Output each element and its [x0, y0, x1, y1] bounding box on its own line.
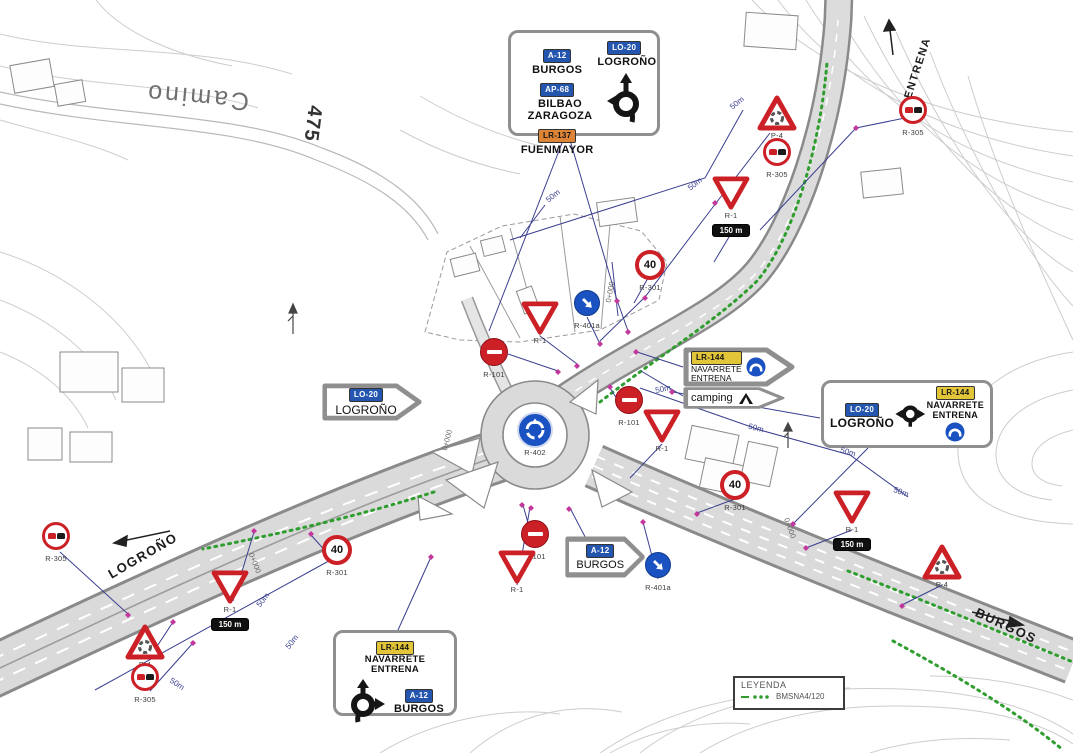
tunnel-pictogram-icon	[945, 422, 965, 442]
arrow-sign-navarrete-entrena: LR-144 NAVARRETE ENTRENA	[683, 347, 795, 387]
route-badge-lo20: LO-20	[845, 403, 879, 417]
legend-item-label: BMSNA4/120	[776, 692, 824, 701]
direction-board-right: LO-20 LOGROÑO LR-144 NAVARRETE ENTRENA	[821, 380, 993, 448]
tunnel-pictogram-icon	[746, 357, 766, 377]
route-badge-lr144: LR-144	[936, 386, 974, 400]
signage-plan-canvas: LOGROÑO BURGOS ENTRENA Camino 475 A-12 B…	[0, 0, 1073, 753]
destination-burgos: BURGOS	[576, 559, 624, 571]
route-badge-lo20: LO-20	[349, 388, 383, 402]
roundabout-icon	[346, 677, 388, 723]
legend-box: LEYENDA BMSNA4/120	[733, 676, 845, 710]
destination-fuenmayor: FUENMAYOR	[517, 144, 597, 156]
route-badge-lr144: LR-144	[691, 351, 742, 365]
destination-entrena: ENTRENA	[691, 374, 742, 383]
destination-burgos: BURGOS	[517, 64, 597, 76]
route-badge-a12: A-12	[586, 544, 615, 558]
roundabout-icon	[894, 395, 927, 433]
destination-entrena: ENTRENA	[342, 665, 448, 675]
barrier-legend-symbol-icon	[741, 693, 771, 701]
direction-board-roundabout-exits: A-12 BURGOS AP-68 BILBAO ZARAGOZA LR-137…	[508, 30, 660, 136]
roundabout-icon	[607, 71, 641, 123]
destination-entrena: ENTRENA	[927, 410, 984, 420]
destination-logrono: LOGROÑO	[597, 56, 651, 68]
route-badge-lo20: LO-20	[607, 41, 641, 55]
destination-burgos: BURGOS	[394, 703, 444, 715]
route-badge-ap68: AP-68	[540, 83, 574, 97]
arrow-sign-logrono: LO-20 LOGROÑO	[322, 383, 422, 421]
arrow-sign-camping: camping	[683, 387, 785, 409]
destination-navarrete: NAVARRETE	[927, 400, 984, 410]
route-badge-lr144: LR-144	[376, 641, 414, 655]
route-badge-a12: A-12	[405, 689, 434, 703]
route-badge-a12: A-12	[543, 49, 572, 63]
camino-track	[0, 92, 438, 240]
parcel-boundaries	[425, 214, 667, 342]
arrow-sign-burgos: A-12 BURGOS	[565, 536, 645, 578]
destination-logrono: LOGROÑO	[335, 403, 396, 417]
camping-label: camping	[691, 392, 733, 404]
destination-bilbao-zaragoza: BILBAO ZARAGOZA	[517, 98, 603, 122]
elevation-label: 475	[299, 104, 326, 143]
destination-logrono: LOGROÑO	[830, 417, 894, 429]
roundabout	[481, 381, 589, 489]
direction-board-bottom: LR-144 NAVARRETE ENTRENA A-12 BURGOS	[333, 630, 457, 716]
tent-icon	[738, 392, 754, 405]
route-badge-lr137: LR-137	[538, 129, 576, 143]
legend-title: LEYENDA	[741, 680, 837, 690]
